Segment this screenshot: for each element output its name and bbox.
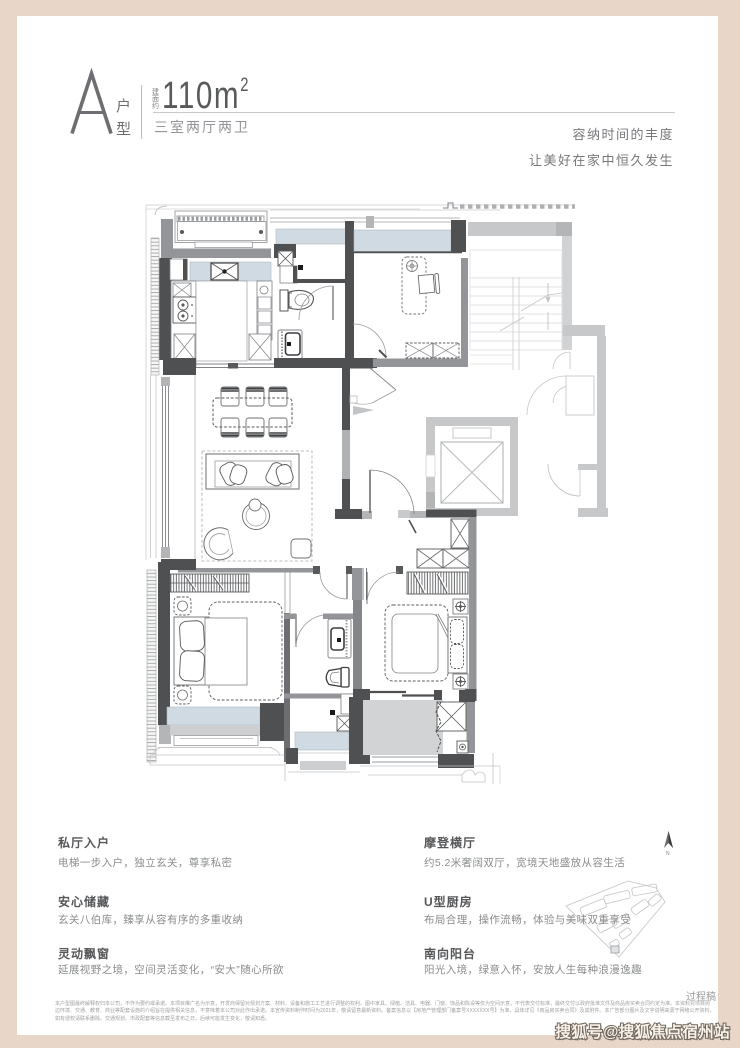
svg-text:搜狐号@搜狐焦点宿州站: 搜狐号@搜狐焦点宿州站: [556, 1022, 731, 1041]
